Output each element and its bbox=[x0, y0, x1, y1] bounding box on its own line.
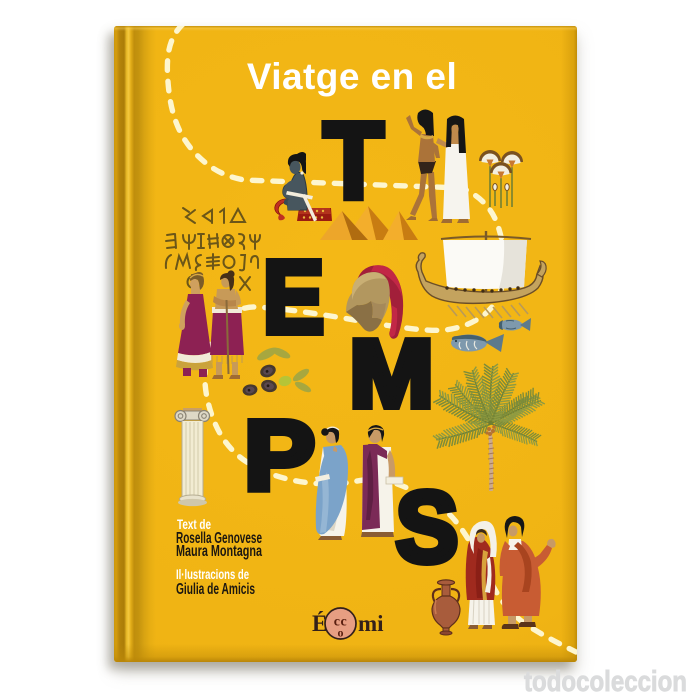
svg-text:Maura Montagna: Maura Montagna bbox=[176, 543, 262, 560]
svg-text:o: o bbox=[338, 626, 344, 640]
svg-text:Il·lustracions de: Il·lustracions de bbox=[176, 566, 249, 582]
svg-text:Giulia de Amicis: Giulia de Amicis bbox=[176, 581, 255, 598]
svg-text:mi: mi bbox=[358, 611, 384, 636]
svg-text:Viatge en el: Viatge en el bbox=[247, 56, 457, 97]
svg-text:P: P bbox=[244, 400, 315, 511]
svg-text:M: M bbox=[349, 320, 434, 427]
svg-text:É: É bbox=[312, 611, 327, 636]
svg-text:T: T bbox=[324, 100, 384, 220]
svg-text:E: E bbox=[263, 239, 325, 355]
svg-text:S: S bbox=[396, 471, 459, 584]
svg-text:todocoleccion: todocoleccion bbox=[524, 666, 687, 698]
